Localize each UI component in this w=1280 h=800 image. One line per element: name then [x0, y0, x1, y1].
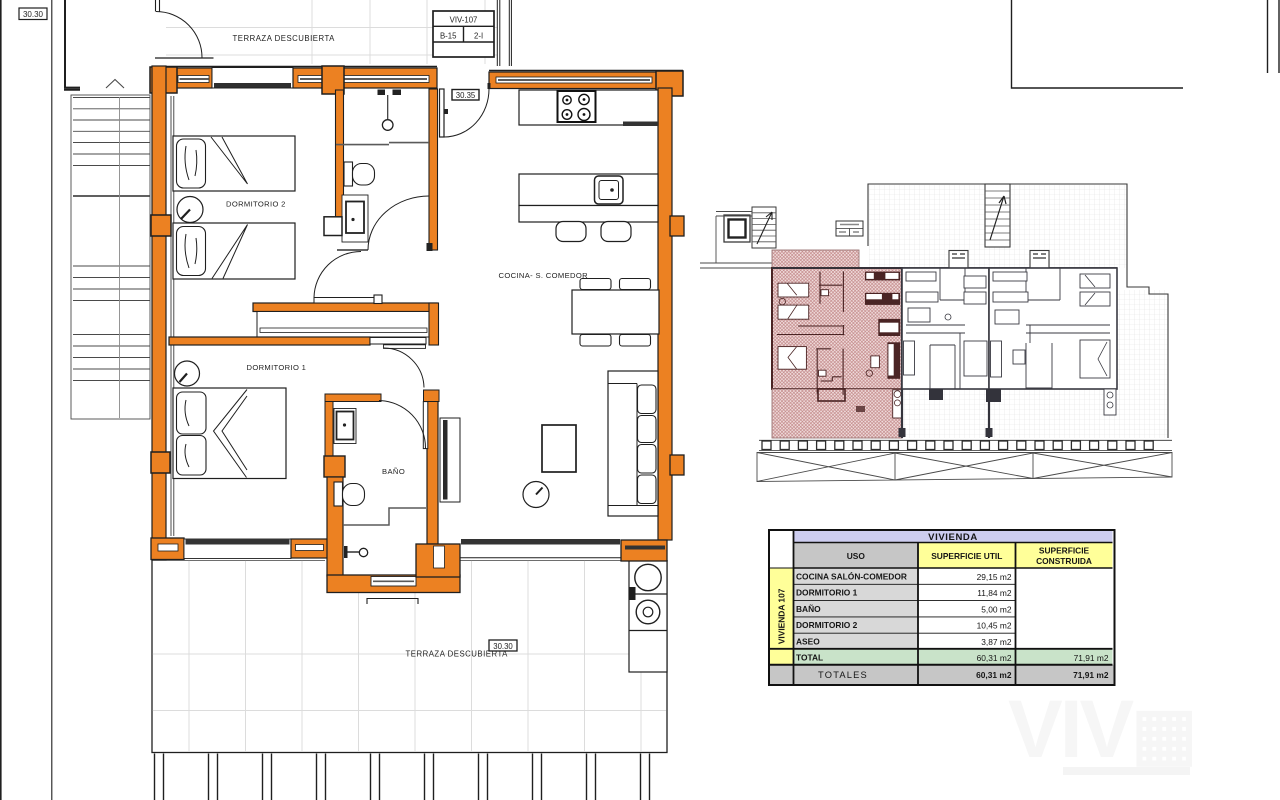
svg-text:SUPERFICIE UTIL: SUPERFICIE UTIL	[931, 551, 1002, 561]
svg-text:TOTAL: TOTAL	[796, 653, 823, 663]
svg-text:5,00 m2: 5,00 m2	[981, 604, 1012, 614]
svg-text:71,91 m2: 71,91 m2	[1074, 653, 1109, 663]
svg-text:DORMITORIO 1: DORMITORIO 1	[796, 588, 858, 598]
svg-text:DORMITORIO 2: DORMITORIO 2	[226, 199, 286, 208]
svg-text:VIV-107: VIV-107	[450, 16, 478, 25]
svg-text:SUPERFICIE: SUPERFICIE	[1039, 546, 1090, 556]
svg-text:30.30: 30.30	[493, 642, 513, 651]
svg-text:DORMITORIO 1: DORMITORIO 1	[247, 363, 307, 372]
svg-text:2-I: 2-I	[474, 31, 483, 40]
svg-text:BAÑO: BAÑO	[796, 604, 821, 614]
svg-text:TOTALES: TOTALES	[818, 670, 868, 680]
svg-text:B-15: B-15	[440, 31, 457, 40]
svg-text:ASEO: ASEO	[796, 637, 820, 647]
svg-text:60,31 m2: 60,31 m2	[977, 653, 1012, 663]
svg-text:71,91 m2: 71,91 m2	[1073, 670, 1109, 680]
svg-text:29,15 m2: 29,15 m2	[977, 572, 1012, 582]
svg-text:VIVIENDA: VIVIENDA	[928, 532, 978, 543]
svg-text:TERRAZA DESCUBIERTA: TERRAZA DESCUBIERTA	[233, 34, 336, 43]
svg-text:BAÑO: BAÑO	[382, 467, 405, 476]
svg-text:3,87 m2: 3,87 m2	[981, 637, 1012, 647]
svg-text:30.35: 30.35	[456, 91, 476, 100]
svg-text:USO: USO	[847, 551, 866, 561]
svg-text:COCINA SALÓN-COMEDOR: COCINA SALÓN-COMEDOR	[796, 570, 907, 581]
svg-text:10,45 m2: 10,45 m2	[977, 621, 1012, 631]
svg-text:VIVIENDA 107: VIVIENDA 107	[777, 588, 787, 644]
svg-text:DORMITORIO 2: DORMITORIO 2	[796, 620, 858, 630]
svg-text:11,84 m2: 11,84 m2	[977, 588, 1012, 598]
svg-text:VIV▦: VIV▦	[1008, 684, 1194, 775]
svg-text:60,31 m2: 60,31 m2	[976, 670, 1012, 680]
svg-text:30.30: 30.30	[23, 10, 44, 19]
svg-text:CONSTRUIDA: CONSTRUIDA	[1036, 556, 1092, 566]
svg-text:COCINA- S. COMEDOR: COCINA- S. COMEDOR	[499, 271, 589, 280]
